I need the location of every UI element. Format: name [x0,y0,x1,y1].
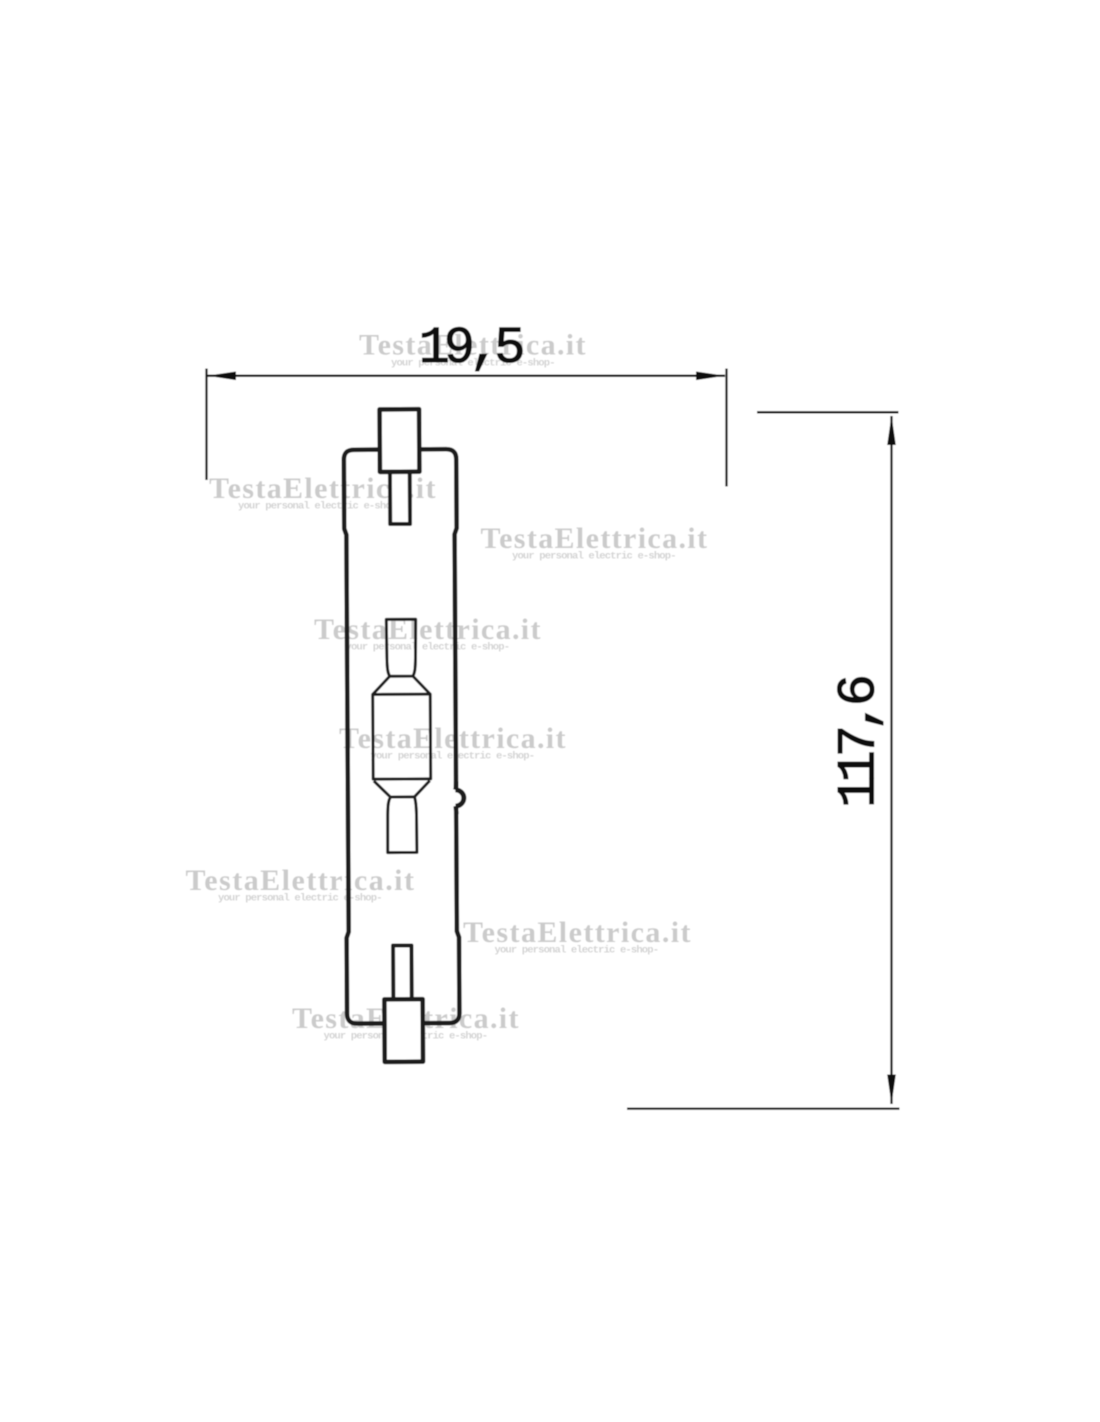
svg-text:your personal electric e-shop-: your personal electric e-shop- [371,751,536,763]
svg-text:your personal electric e-shop-: your personal electric e-shop- [512,551,677,563]
svg-text:your personal electric e-shop-: your personal electric e-shop- [218,893,383,905]
svg-text:19,5: 19,5 [419,319,523,378]
svg-text:your personal electric e-shop-: your personal electric e-shop- [238,501,403,513]
svg-text:your personal electric e-shop-: your personal electric e-shop- [495,945,660,957]
svg-text:117,6: 117,6 [830,677,891,808]
svg-text:your personal electric e-shop-: your personal electric e-shop- [346,642,511,654]
